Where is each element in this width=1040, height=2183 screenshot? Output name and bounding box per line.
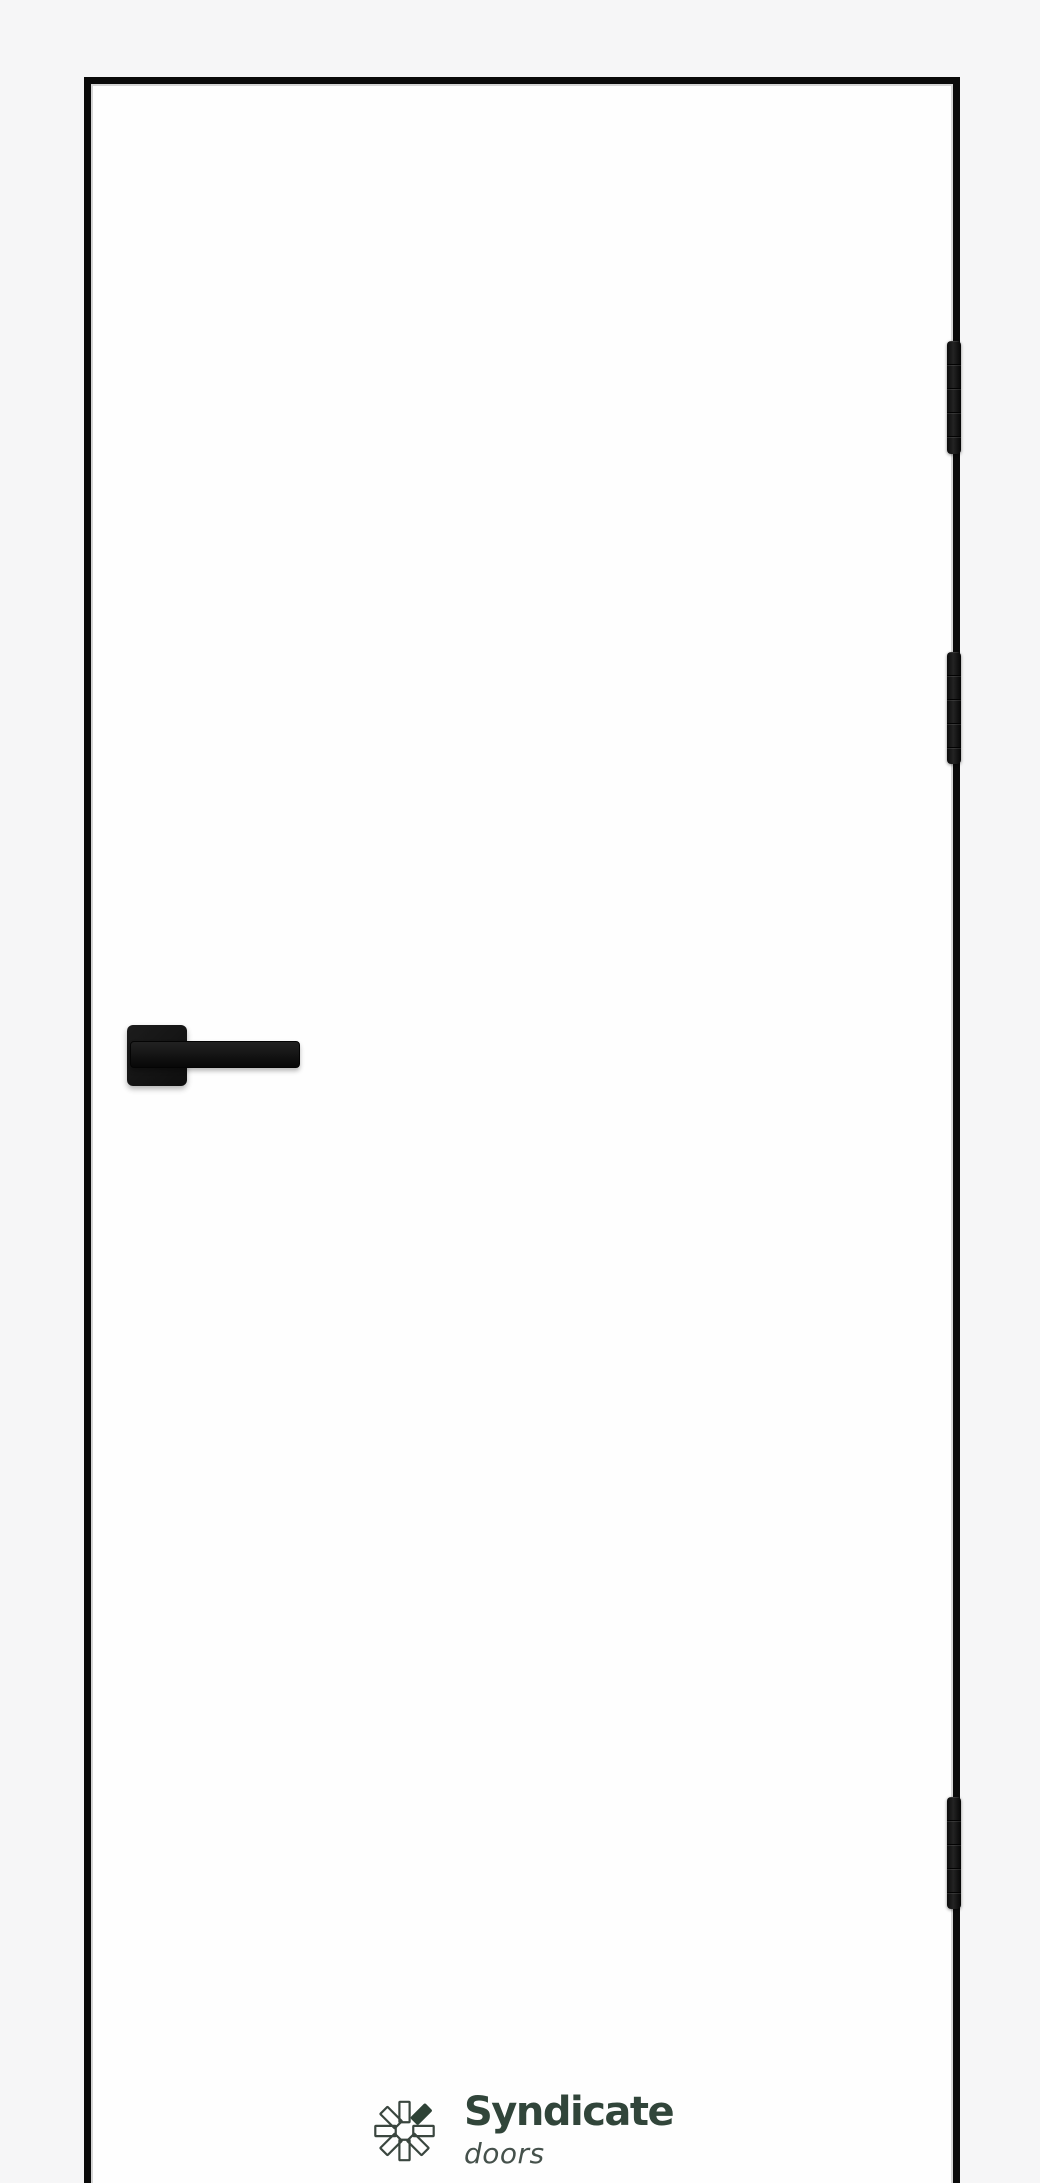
brand-logo: Syndicate doors	[368, 2091, 673, 2170]
pinwheel-petals-icon	[368, 2094, 441, 2168]
brand-name: Syndicate	[464, 2091, 673, 2133]
hinge-top	[947, 341, 961, 454]
door-product-image: Syndicate doors	[0, 0, 1040, 2183]
door-handle-lever	[130, 1041, 300, 1068]
brand-text: Syndicate doors	[464, 2091, 673, 2170]
hinge-middle	[947, 652, 961, 764]
hinge-bottom	[947, 1797, 961, 1909]
brand-tagline: doors	[464, 2137, 673, 2170]
door-leaf	[84, 77, 960, 2183]
